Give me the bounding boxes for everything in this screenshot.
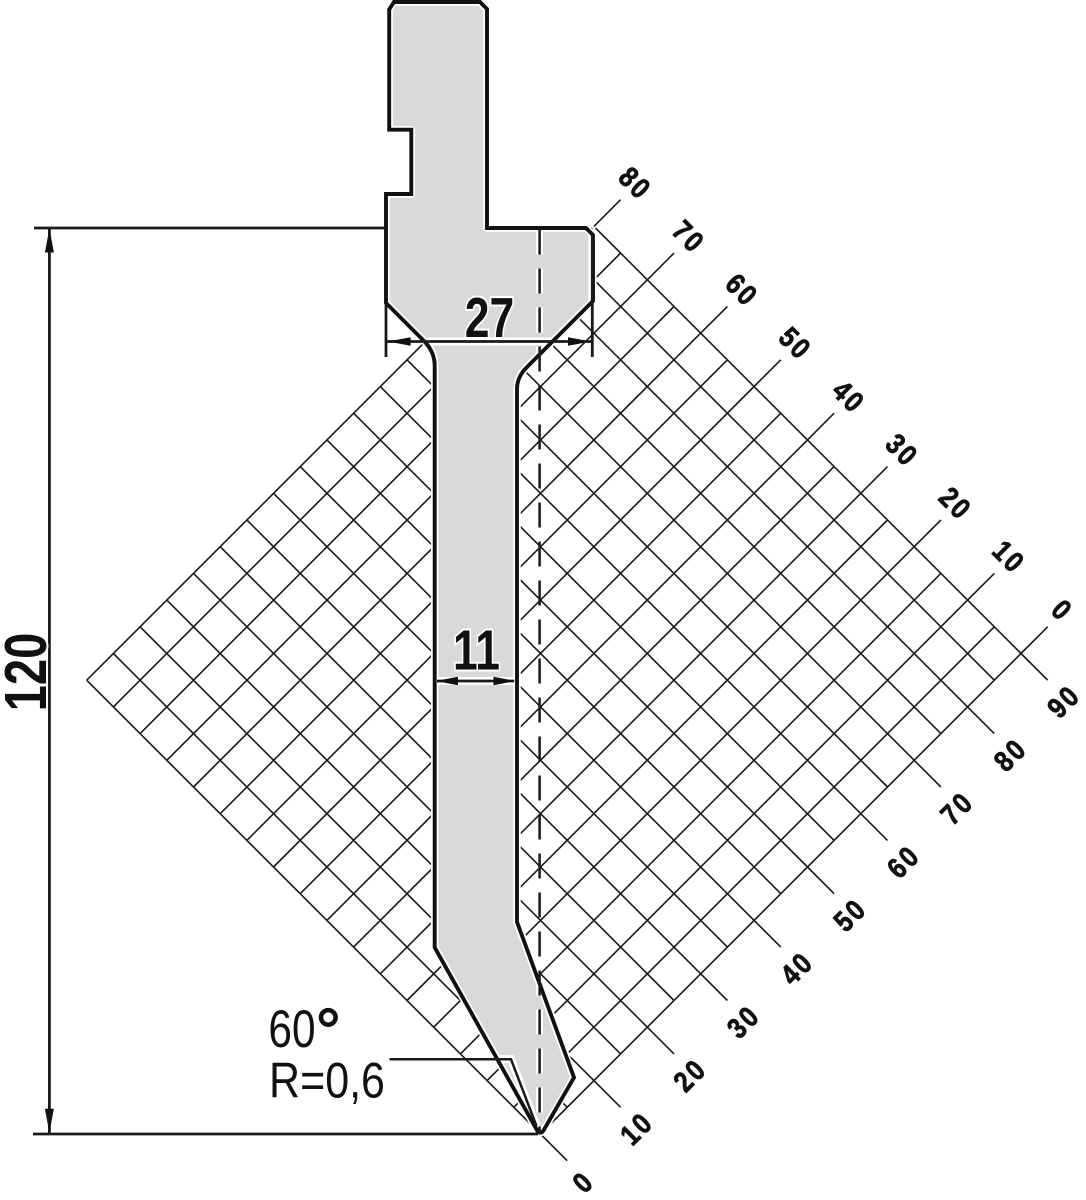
- svg-text:11: 11: [453, 618, 500, 682]
- svg-text:60: 60: [268, 1001, 315, 1060]
- svg-text:27: 27: [465, 286, 514, 350]
- svg-text:120: 120: [0, 633, 59, 712]
- svg-text:R=0,6: R=0,6: [269, 1052, 385, 1108]
